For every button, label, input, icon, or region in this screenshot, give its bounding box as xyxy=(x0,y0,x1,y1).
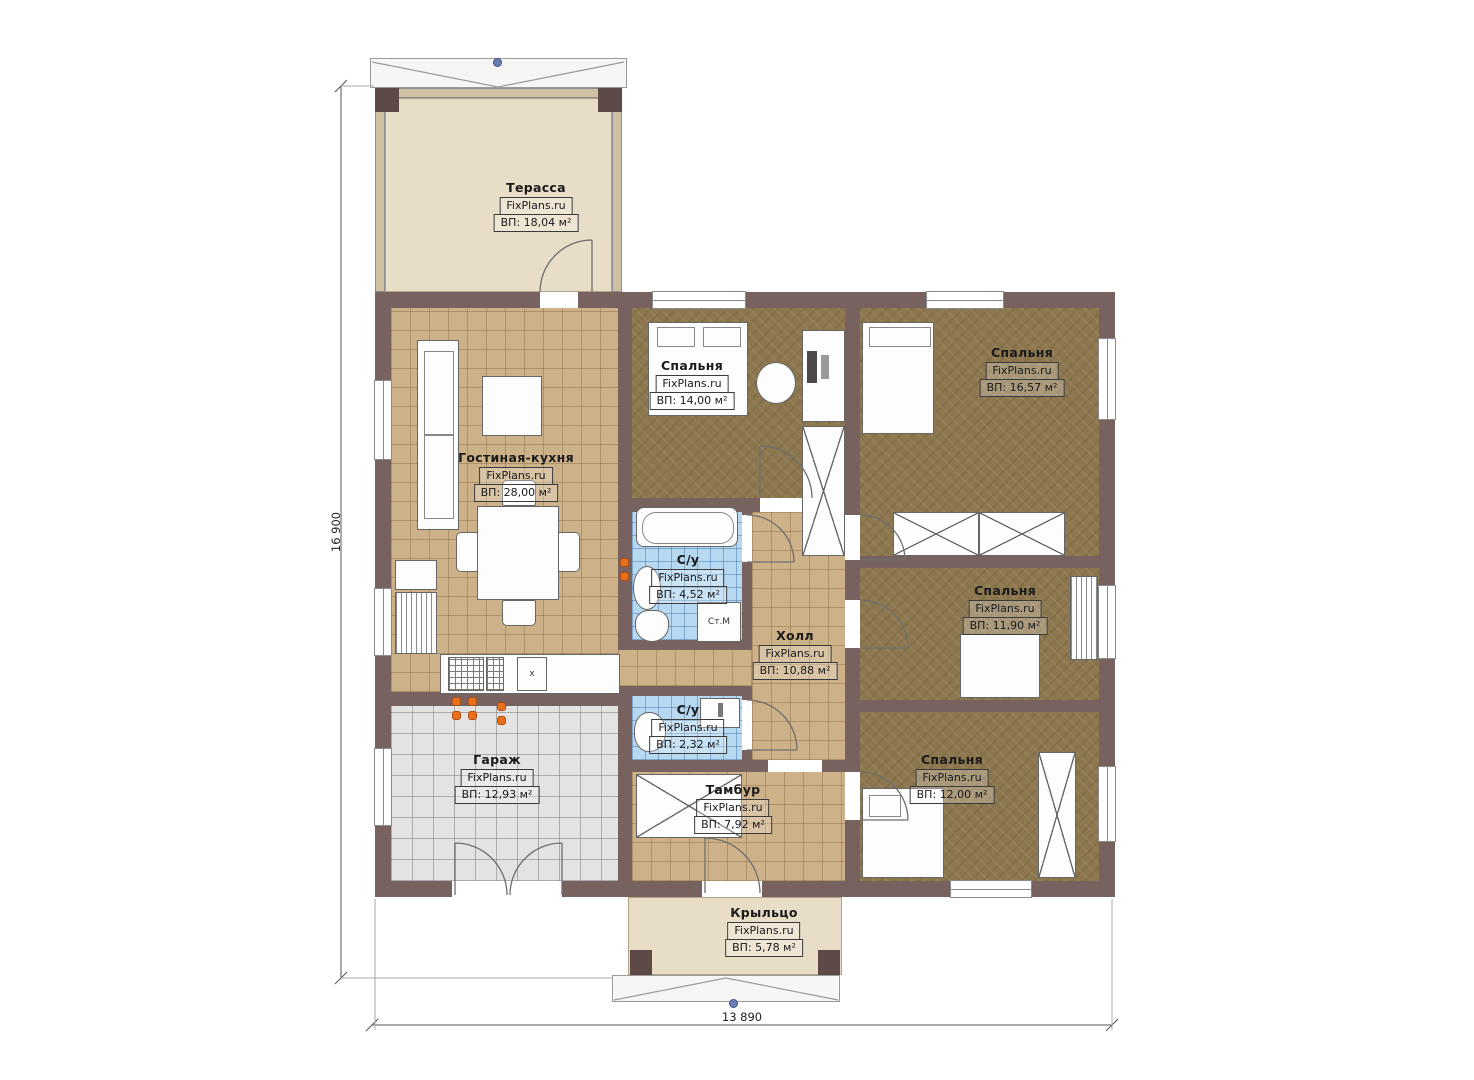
bedroom-3-door-gap xyxy=(845,600,860,648)
wall-h7 xyxy=(845,700,1115,712)
bed-single xyxy=(862,322,934,434)
room-name: Спальня xyxy=(921,752,983,767)
heater-dot xyxy=(620,572,629,581)
keyboard xyxy=(821,355,829,379)
floor-plan: x Ст.М xyxy=(0,0,1474,1080)
bathtub xyxy=(636,507,738,547)
porch-pillar-left xyxy=(630,950,652,975)
bedroom-2-door-gap xyxy=(845,515,860,560)
terrace-door-gap xyxy=(540,292,578,308)
label-bedroom-3: Спальня FixPlans.ru ВП: 11,90 м² xyxy=(963,583,1048,635)
front-door-gap xyxy=(702,881,762,897)
oven xyxy=(486,657,504,691)
room-area: ВП: 11,90 м² xyxy=(963,617,1048,635)
room-area: ВП: 16,57 м² xyxy=(980,379,1065,397)
wardrobe xyxy=(893,512,979,556)
wall-h5-vestibule xyxy=(618,760,860,772)
label-hall: Холл FixPlans.ru ВП: 10,88 м² xyxy=(753,628,838,680)
room-name: Тамбур xyxy=(706,782,761,797)
label-bedroom-2: Спальня FixPlans.ru ВП: 16,57 м² xyxy=(980,345,1065,397)
label-porch: Крыльцо FixPlans.ru ВП: 5,78 м² xyxy=(725,905,803,957)
room-area: ВП: 10,88 м² xyxy=(753,662,838,680)
terrace-wall-top xyxy=(375,88,622,98)
washing-machine-label: Ст.М xyxy=(708,617,730,627)
watermark: FixPlans.ru xyxy=(460,769,533,787)
sofa xyxy=(417,340,459,530)
chair xyxy=(456,532,478,572)
room-area: ВП: 4,52 м² xyxy=(649,586,727,604)
watermark: FixPlans.ru xyxy=(968,600,1041,618)
room-area: ВП: 12,93 м² xyxy=(455,786,540,804)
sofa-cushion xyxy=(424,351,454,435)
wall-h6 xyxy=(845,556,1115,568)
pillow xyxy=(869,795,901,817)
bedroom-4-door-gap xyxy=(845,772,860,820)
room-name: Спальня xyxy=(974,583,1036,598)
watermark: FixPlans.ru xyxy=(758,645,831,663)
window-bedroom-3 xyxy=(1098,585,1116,659)
window-living-1 xyxy=(374,380,392,460)
bathtub-inner xyxy=(642,512,734,544)
burner-dot xyxy=(497,702,506,711)
room-area: ВП: 7,92 м² xyxy=(694,816,772,834)
wall-bath2-top xyxy=(618,686,752,696)
desk xyxy=(802,330,845,422)
room-area: ВП: 2,32 м² xyxy=(649,736,727,754)
wall-v1-upper xyxy=(618,308,632,650)
room-name: Спальня xyxy=(991,345,1053,360)
terrace-wall-left xyxy=(375,88,385,292)
heater-dot xyxy=(620,558,629,567)
toilet xyxy=(635,610,669,642)
label-garage: Гараж FixPlans.ru ВП: 12,93 м² xyxy=(455,752,540,804)
chair xyxy=(502,600,536,626)
roof-handle xyxy=(493,58,502,67)
burner-dot xyxy=(468,711,477,720)
room-area: ВП: 14,00 м² xyxy=(650,392,735,410)
coffee-table xyxy=(482,376,542,436)
terrace-pillar-left xyxy=(375,88,399,112)
room-area: ВП: 28,00 м² xyxy=(474,484,559,502)
dimension-height: 16 900 xyxy=(329,512,343,552)
porch-steps xyxy=(612,975,840,1002)
desk-chair xyxy=(756,362,796,404)
dining-table xyxy=(477,506,559,600)
label-living-kitchen: Гостиная-кухня FixPlans.ru ВП: 28,00 м² xyxy=(458,450,574,502)
watermark: FixPlans.ru xyxy=(499,197,572,215)
porch-pillar-right xyxy=(818,950,840,975)
dimension-width: 13 890 xyxy=(722,1010,762,1024)
pillow xyxy=(657,327,695,347)
window-bedroom-4-bottom xyxy=(950,880,1032,898)
label-bathroom-2: С/у FixPlans.ru ВП: 2,32 м² xyxy=(649,702,727,754)
room-name: С/у xyxy=(677,702,700,717)
pillow xyxy=(703,327,741,347)
room-area: ВП: 18,04 м² xyxy=(494,214,579,232)
pillow xyxy=(869,327,931,347)
label-vestibule: Тамбур FixPlans.ru ВП: 7,92 м² xyxy=(694,782,772,834)
window-bedroom-4-right xyxy=(1098,766,1116,842)
fridge xyxy=(395,592,437,654)
terrace-pillar-right xyxy=(598,88,622,112)
sofa-cushion xyxy=(424,435,454,519)
kitchen-cabinet xyxy=(395,560,437,590)
watermark: FixPlans.ru xyxy=(696,799,769,817)
watermark: FixPlans.ru xyxy=(727,922,800,940)
monitor xyxy=(807,351,817,383)
wardrobe-narrow xyxy=(1070,576,1098,660)
label-bathroom-1: С/у FixPlans.ru ВП: 4,52 м² xyxy=(649,552,727,604)
wardrobe xyxy=(802,426,845,556)
watermark: FixPlans.ru xyxy=(655,375,728,393)
room-name: Гараж xyxy=(473,752,521,767)
room-name: С/у xyxy=(677,552,700,567)
label-bedroom-1: Спальня FixPlans.ru ВП: 14,00 м² xyxy=(650,358,735,410)
room-area: ВП: 12,00 м² xyxy=(910,786,995,804)
watermark: FixPlans.ru xyxy=(651,569,724,587)
watermark: FixPlans.ru xyxy=(985,362,1058,380)
burner-dot xyxy=(468,697,477,706)
label-bedroom-4: Спальня FixPlans.ru ВП: 12,00 м² xyxy=(910,752,995,804)
porch-handle xyxy=(729,999,738,1008)
bathroom-2-door-gap xyxy=(742,700,752,750)
room-name: Спальня xyxy=(661,358,723,373)
window-bedroom-2-top xyxy=(926,291,1004,309)
washing-machine: Ст.М xyxy=(697,602,741,642)
bathroom-1-door-gap xyxy=(742,515,752,562)
window-bedroom-2-right xyxy=(1098,338,1116,420)
room-name: Гостиная-кухня xyxy=(458,450,574,465)
kitchen-sink-mark: x xyxy=(529,669,534,679)
garage-door-gap xyxy=(452,881,562,897)
window-living-2 xyxy=(374,588,392,656)
wall-v1-lower xyxy=(618,686,632,881)
label-terrace: Терасса FixPlans.ru ВП: 18,04 м² xyxy=(494,180,579,232)
stove xyxy=(448,657,484,691)
bed-single xyxy=(960,634,1040,698)
room-name: Холл xyxy=(776,628,814,643)
kitchen-sink: x xyxy=(517,657,547,691)
watermark: FixPlans.ru xyxy=(479,467,552,485)
burner-dot xyxy=(452,711,461,720)
burner-dot xyxy=(497,716,506,725)
room-name: Терасса xyxy=(506,180,566,195)
window-garage xyxy=(374,748,392,826)
hall-vestibule-gap xyxy=(768,760,822,772)
chair xyxy=(558,532,580,572)
watermark: FixPlans.ru xyxy=(915,769,988,787)
watermark: FixPlans.ru xyxy=(651,719,724,737)
hall-strip-floor xyxy=(618,650,752,686)
wardrobe xyxy=(1038,752,1076,878)
burner-dot xyxy=(452,697,461,706)
room-area: ВП: 5,78 м² xyxy=(725,939,803,957)
room-name: Крыльцо xyxy=(730,905,797,920)
terrace-wall-right xyxy=(612,88,622,292)
window-bedroom-1 xyxy=(652,291,746,309)
wardrobe xyxy=(979,512,1065,556)
